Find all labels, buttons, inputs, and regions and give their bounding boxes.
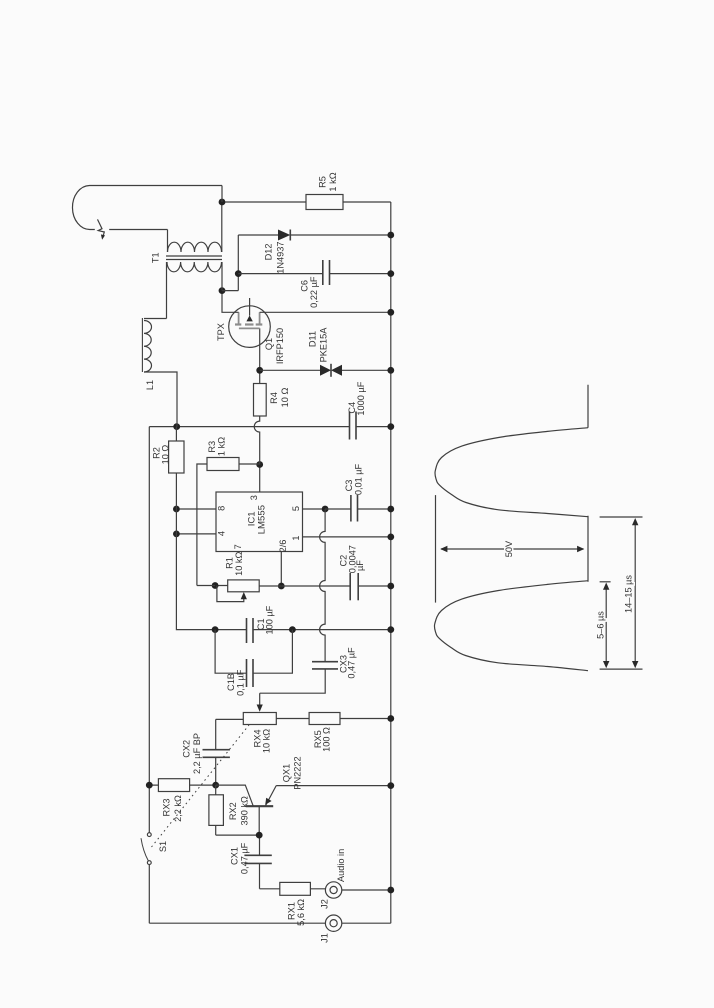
- svg-text:0,47 µF: 0,47 µF: [347, 647, 357, 679]
- svg-text:PKE15A: PKE15A: [319, 327, 329, 363]
- svg-text:50V: 50V: [504, 540, 514, 557]
- svg-text:L1: L1: [145, 380, 155, 390]
- svg-text:3: 3: [249, 495, 259, 500]
- svg-text:IRFP150: IRFP150: [275, 328, 285, 364]
- svg-text:1000 µF: 1000 µF: [356, 381, 366, 415]
- svg-text:0,01 µF: 0,01 µF: [354, 463, 364, 495]
- svg-text:J2: J2: [320, 899, 330, 909]
- svg-text:1N4937: 1N4937: [275, 242, 285, 274]
- svg-text:2/6: 2/6: [278, 540, 288, 553]
- svg-text:D11: D11: [307, 331, 317, 347]
- svg-text:R1: R1: [225, 557, 235, 569]
- svg-text:1 kΩ: 1 kΩ: [328, 172, 338, 191]
- svg-text:0,22 µF: 0,22 µF: [309, 276, 319, 308]
- svg-text:C3: C3: [344, 480, 354, 492]
- svg-text:10 kΩ: 10 kΩ: [234, 552, 244, 576]
- svg-text:100 Ω: 100 Ω: [322, 727, 332, 752]
- svg-text:5,6 kΩ: 5,6 kΩ: [296, 899, 306, 926]
- svg-text:8: 8: [217, 506, 227, 511]
- svg-text:10 Ω: 10 Ω: [160, 445, 170, 465]
- svg-text:Audio in: Audio in: [336, 849, 346, 882]
- svg-text:RX3: RX3: [162, 799, 172, 817]
- svg-text:QX1: QX1: [281, 764, 291, 782]
- svg-text:7: 7: [233, 544, 243, 549]
- svg-text:S1: S1: [158, 841, 168, 852]
- svg-text:0,47 µF: 0,47 µF: [239, 842, 249, 874]
- svg-text:PN2222: PN2222: [293, 756, 303, 789]
- svg-text:RX2: RX2: [228, 802, 238, 820]
- svg-text:390 kΩ: 390 kΩ: [239, 796, 249, 825]
- svg-text:T1: T1: [151, 252, 161, 263]
- svg-text:100 µF: 100 µF: [265, 605, 275, 634]
- svg-text:LM555: LM555: [257, 505, 268, 534]
- svg-text:14–15 µs: 14–15 µs: [624, 575, 634, 613]
- svg-text:TPX: TPX: [216, 323, 226, 341]
- svg-text:2,2 kΩ: 2,2 kΩ: [173, 795, 183, 822]
- svg-text:2,2 µF BP: 2,2 µF BP: [192, 733, 202, 774]
- svg-text:10 Ω: 10 Ω: [280, 388, 290, 408]
- svg-text:Q1: Q1: [264, 338, 274, 350]
- svg-text:1 kΩ: 1 kΩ: [216, 437, 226, 456]
- svg-text:R4: R4: [269, 392, 279, 404]
- svg-text:0,1 µF: 0,1 µF: [236, 669, 246, 696]
- svg-text:1: 1: [291, 536, 301, 541]
- svg-text:µF: µF: [355, 560, 365, 571]
- svg-text:5: 5: [291, 506, 301, 511]
- svg-text:J1: J1: [320, 933, 330, 943]
- svg-text:10 kΩ: 10 kΩ: [262, 729, 272, 753]
- svg-text:C1B: C1B: [226, 673, 236, 691]
- svg-text:R5: R5: [318, 176, 328, 188]
- svg-text:D12: D12: [264, 244, 274, 261]
- svg-text:CX2: CX2: [182, 740, 192, 758]
- svg-text:4: 4: [217, 531, 227, 536]
- svg-text:5–6 µs: 5–6 µs: [595, 611, 605, 639]
- svg-text:CX1: CX1: [230, 847, 240, 865]
